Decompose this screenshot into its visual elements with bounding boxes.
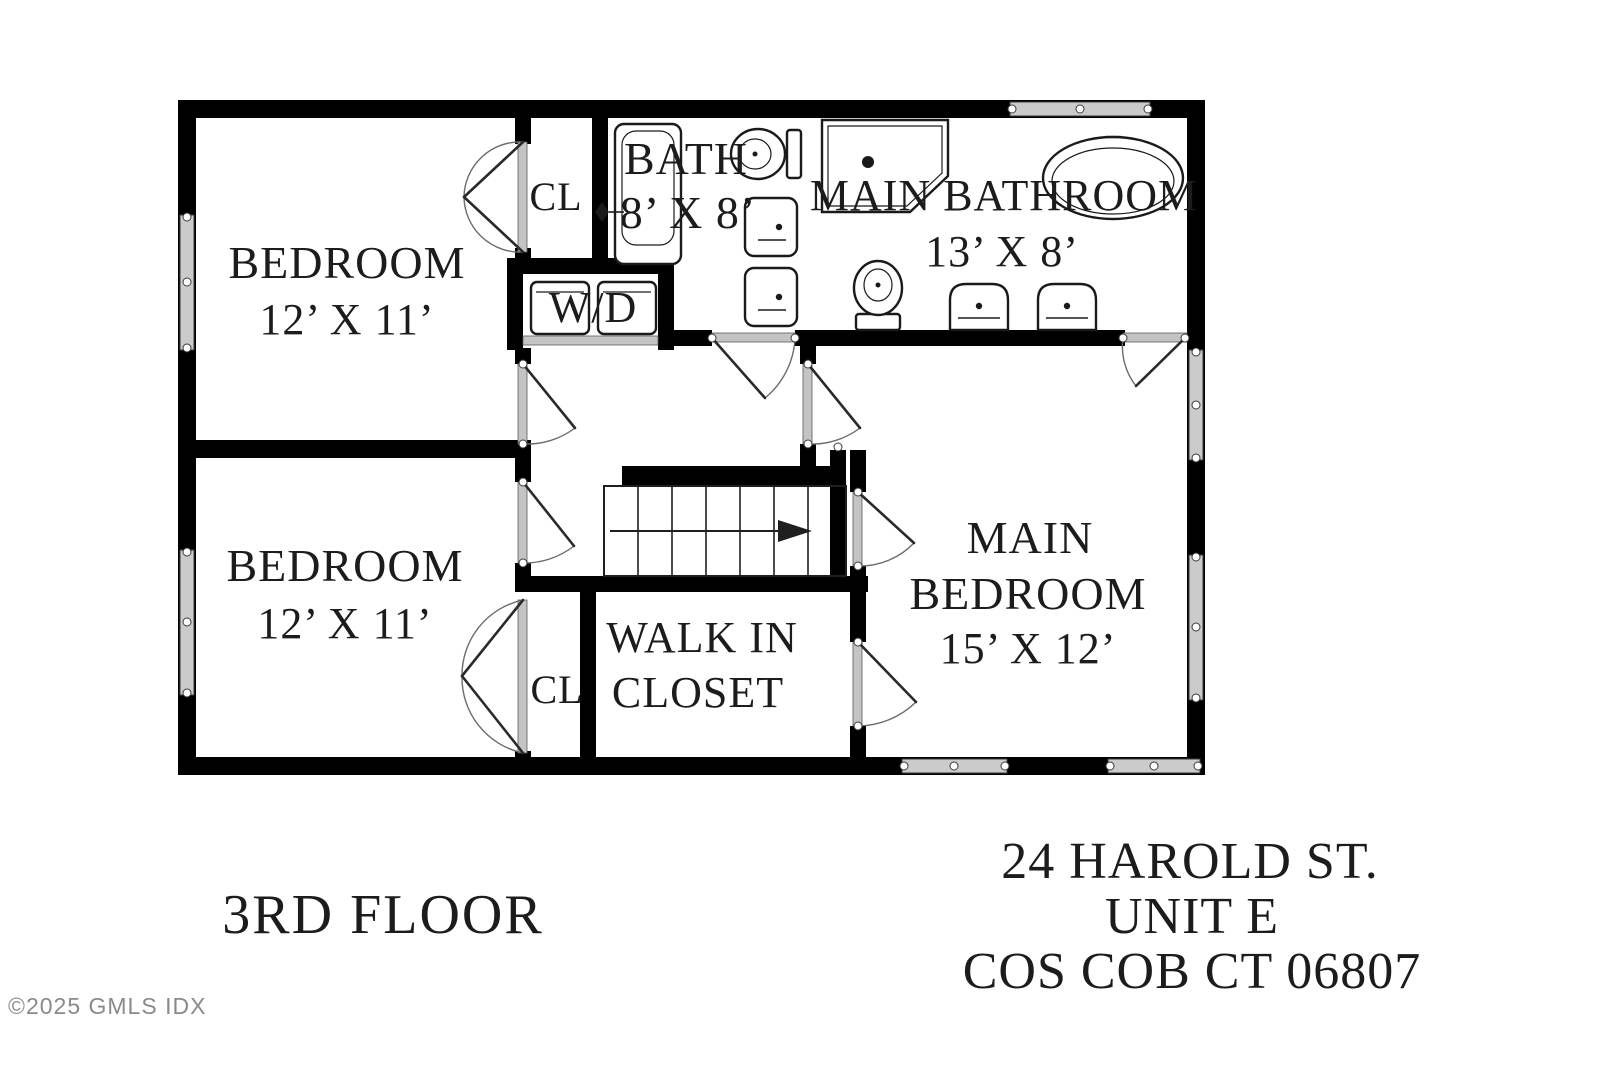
floor-plan: BEDROOM 12’ X 11’ CL BATH 8’ X 8’ MAIN B… (0, 0, 1618, 1080)
wall-segment (800, 330, 816, 364)
main-bedroom-label-line1: MAIN (967, 512, 1094, 563)
door-icon (853, 488, 914, 570)
copyright-watermark: ©2025 GMLS IDX (8, 993, 206, 1019)
stair-direction-arrow-icon (610, 520, 812, 542)
bedroom-bottom-dims: 12’ X 11’ (257, 599, 432, 648)
wall-segment (658, 258, 674, 350)
vanity-sink-icon (745, 268, 797, 326)
walk-in-closet-label-line1: WALK IN (606, 613, 798, 662)
wall-segment (850, 450, 866, 492)
wall-segment (507, 258, 523, 350)
wall-segment (830, 450, 846, 576)
bath-dims: 8’ X 8’ (620, 187, 756, 238)
floor-title: 3RD FLOOR (222, 884, 543, 946)
door-icon (518, 360, 575, 448)
wall-segment (178, 440, 531, 458)
bedroom-top-label: BEDROOM (228, 237, 465, 288)
wall-segment (178, 757, 1205, 775)
wall-segment (816, 330, 1125, 346)
window-icon (1106, 759, 1202, 773)
wall-segment (515, 751, 531, 775)
window-icon (1008, 102, 1152, 116)
wall-segment (622, 466, 846, 486)
main-bedroom-label-line2: BEDROOM (909, 568, 1146, 619)
window-icon (900, 759, 1009, 773)
main-bedroom-dims: 15’ X 12’ (940, 624, 1117, 673)
address-line3: COS COB CT 06807 (963, 943, 1422, 1000)
sliding-door-icon (523, 336, 842, 451)
bedroom-bottom-label: BEDROOM (226, 540, 463, 591)
address-line2: UNIT E (1105, 888, 1279, 945)
vanity-sink-icon (1038, 284, 1096, 330)
room-labels: BEDROOM 12’ X 11’ CL BATH 8’ X 8’ MAIN B… (226, 133, 1198, 717)
staircase-icon (604, 486, 846, 576)
door-icon (708, 333, 799, 398)
main-bathroom-label: MAIN BATHROOM (810, 171, 1198, 220)
wall-segment (674, 330, 712, 346)
window-icon (180, 548, 194, 697)
bifold-door-icon (462, 600, 527, 753)
window-icon (1189, 348, 1203, 462)
wall-segment (850, 566, 866, 642)
window-icon (180, 213, 194, 352)
vanity-sink-icon (950, 284, 1008, 330)
wall-segment (592, 118, 608, 266)
closet-bottom-label: CL (530, 667, 583, 712)
door-icon (803, 360, 860, 448)
wall-segment (515, 118, 531, 144)
walk-in-closet-label-line2: CLOSET (612, 668, 784, 717)
door-icon (853, 638, 916, 730)
address-line1: 24 HAROLD ST. (1001, 833, 1378, 890)
wall-segment (515, 576, 868, 592)
bath-label: BATH (624, 133, 748, 184)
door-icon (518, 478, 574, 567)
toilet-icon (854, 261, 902, 330)
page-text: 3RD FLOOR 24 HAROLD ST. UNIT E COS COB C… (8, 833, 1421, 1019)
main-bathroom-dims: 13’ X 8’ (925, 227, 1079, 276)
door-icon (1119, 333, 1189, 386)
window-icon (1189, 553, 1203, 702)
bifold-door-icon (464, 142, 527, 252)
laundry-label: W/D (549, 283, 638, 332)
closet-top-label: CL (529, 174, 582, 219)
wall-segment (850, 726, 866, 775)
bedroom-top-dims: 12’ X 11’ (259, 295, 434, 344)
